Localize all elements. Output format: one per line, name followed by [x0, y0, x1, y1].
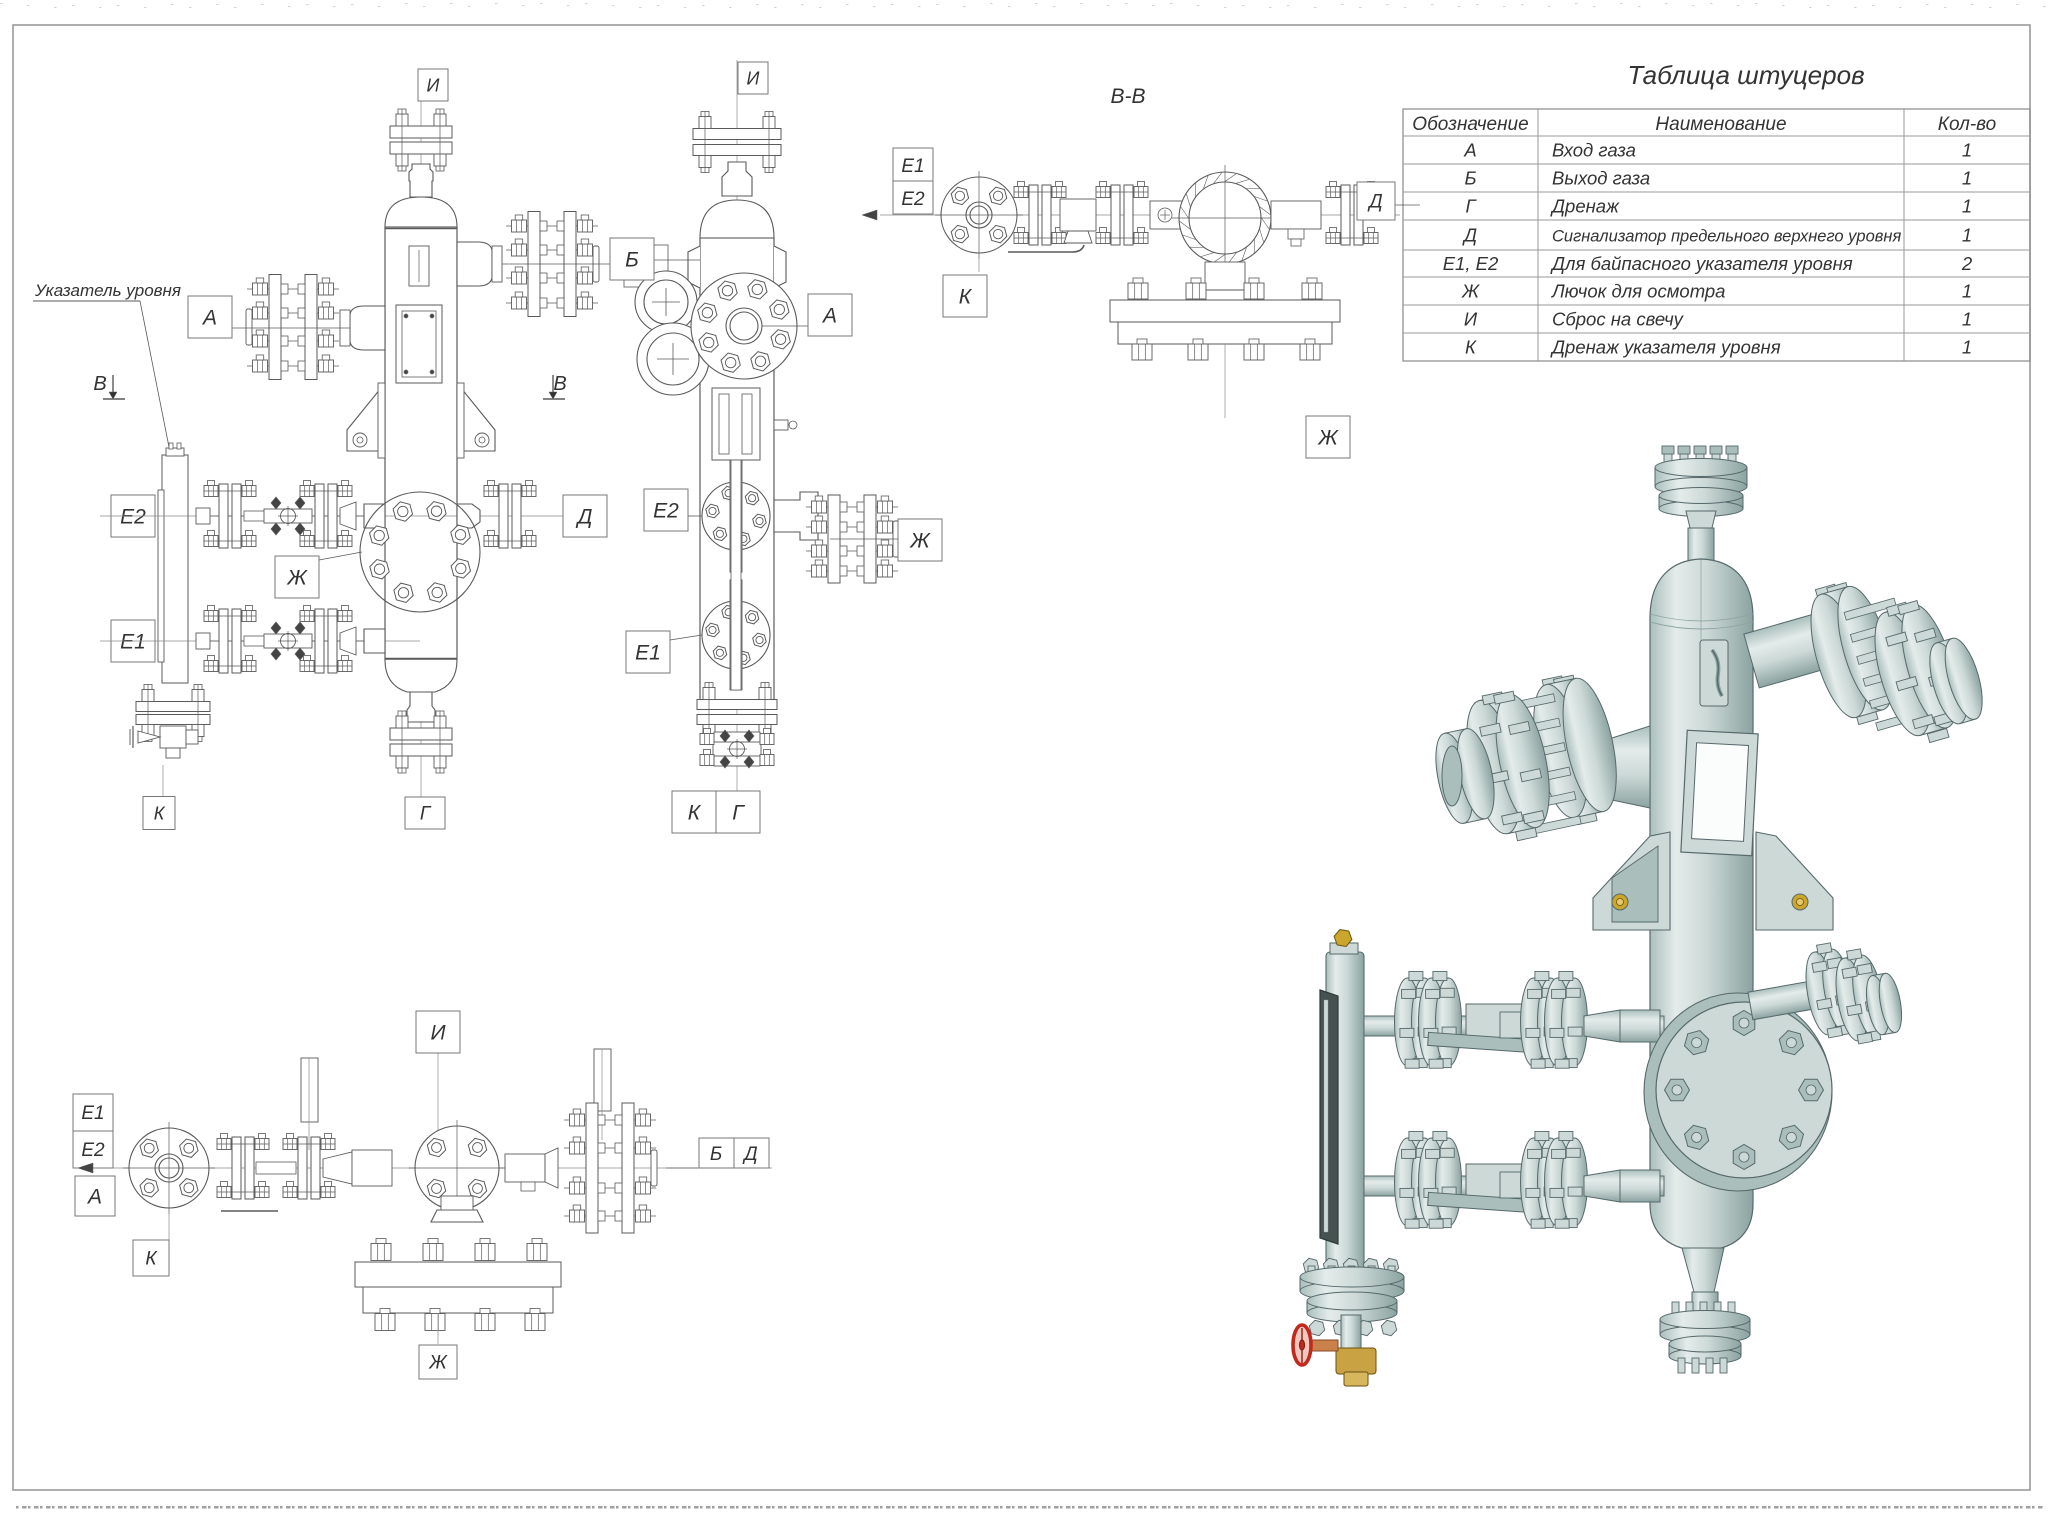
svg-text:Е1, Е2: Е1, Е2: [1443, 253, 1499, 274]
svg-text:Таблица штуцеров: Таблица штуцеров: [1627, 60, 1864, 90]
svg-text:Е1: Е1: [901, 156, 924, 177]
svg-text:К: К: [688, 801, 702, 824]
svg-text:К: К: [145, 1249, 158, 1270]
svg-text:Б: Б: [1464, 168, 1476, 189]
svg-text:А: А: [201, 306, 217, 329]
svg-text:Ж: Ж: [286, 566, 308, 589]
svg-text:Ж: Ж: [1461, 281, 1480, 302]
svg-text:В: В: [553, 373, 566, 395]
svg-text:Ж: Ж: [909, 529, 931, 552]
svg-text:Кол-во: Кол-во: [1938, 114, 1996, 135]
svg-text:1: 1: [1962, 281, 1972, 302]
svg-text:Б: Б: [710, 1144, 722, 1165]
svg-text:В: В: [93, 373, 106, 395]
svg-text:Дренаж указателя уровня: Дренаж указателя уровня: [1550, 337, 1781, 358]
svg-text:И: И: [427, 75, 440, 95]
svg-text:Указатель уровня: Указатель уровня: [34, 281, 181, 300]
svg-text:1: 1: [1962, 225, 1972, 246]
svg-text:Е2: Е2: [653, 499, 679, 522]
svg-text:Выход газа: Выход газа: [1552, 168, 1650, 189]
svg-text:И: И: [1464, 309, 1478, 330]
svg-text:Дренаж: Дренаж: [1550, 196, 1620, 217]
svg-text:Для байпасного указателя уровн: Для байпасного указателя уровня: [1550, 253, 1853, 274]
svg-text:Наименование: Наименование: [1655, 114, 1786, 135]
svg-text:1: 1: [1962, 337, 1972, 358]
svg-text:Д: Д: [742, 1144, 757, 1165]
svg-text:А: А: [821, 304, 837, 327]
svg-text:А: А: [1463, 140, 1476, 161]
svg-text:1: 1: [1962, 140, 1972, 161]
svg-text:Е2: Е2: [901, 189, 925, 210]
svg-text:2: 2: [1961, 253, 1973, 274]
svg-text:Ж: Ж: [1317, 426, 1339, 449]
svg-text:И: И: [747, 68, 760, 88]
svg-text:В-В: В-В: [1110, 85, 1145, 108]
svg-text:Е2: Е2: [81, 1140, 105, 1161]
svg-text:Г: Г: [732, 801, 745, 824]
svg-text:Сброс на свечу: Сброс на свечу: [1552, 309, 1685, 330]
svg-text:1: 1: [1962, 309, 1972, 330]
svg-text:Д: Д: [1367, 192, 1382, 213]
svg-text:Е1: Е1: [81, 1103, 104, 1124]
svg-text:Д: Д: [576, 505, 593, 528]
svg-text:К: К: [1465, 337, 1477, 358]
svg-text:1: 1: [1962, 168, 1972, 189]
svg-text:Лючок для осмотра: Лючок для осмотра: [1551, 281, 1725, 302]
svg-text:1: 1: [1962, 196, 1972, 217]
svg-text:Сигнализатор предельного верхн: Сигнализатор предельного верхнего уровня: [1552, 228, 1901, 246]
svg-text:Е1: Е1: [120, 630, 146, 653]
svg-text:Б: Б: [625, 248, 639, 271]
svg-text:Г: Г: [420, 804, 432, 825]
svg-text:И: И: [430, 1021, 446, 1044]
svg-text:Е1: Е1: [635, 641, 661, 664]
svg-text:К: К: [154, 803, 166, 823]
svg-text:Ж: Ж: [428, 1353, 448, 1374]
svg-text:Е2: Е2: [120, 505, 146, 528]
svg-text:Д: Д: [1462, 225, 1477, 246]
svg-text:Обозначение: Обозначение: [1412, 114, 1528, 135]
svg-text:А: А: [86, 1185, 102, 1208]
svg-text:К: К: [959, 285, 973, 308]
svg-text:Вход газа: Вход газа: [1552, 140, 1636, 161]
